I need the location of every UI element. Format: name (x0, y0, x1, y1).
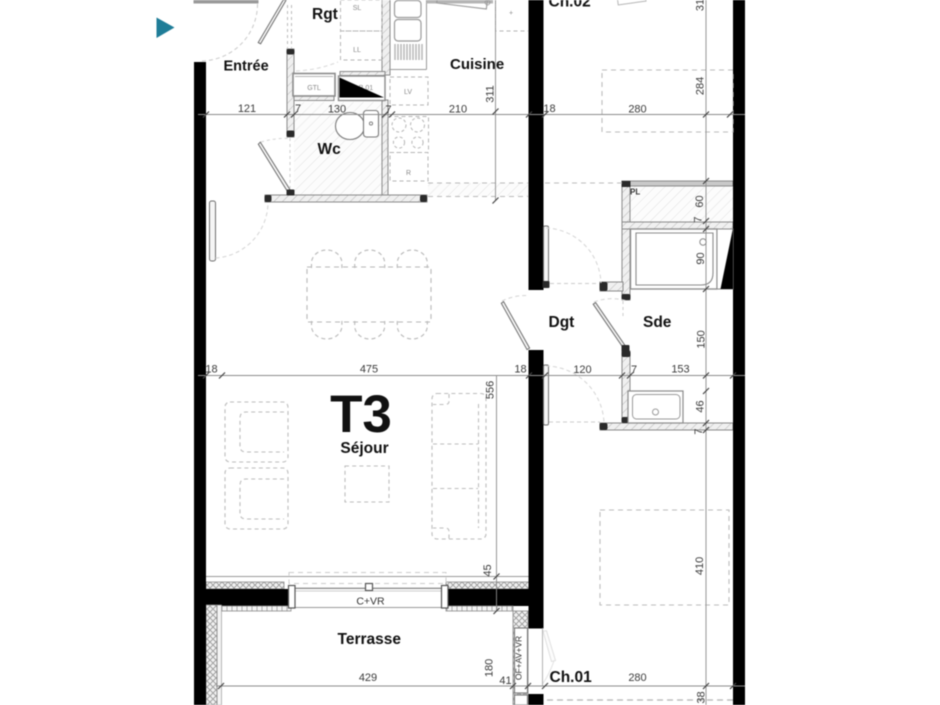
svg-text:150: 150 (696, 330, 708, 348)
svg-text:7: 7 (295, 103, 301, 115)
svg-text:Ch.01: Ch.01 (550, 669, 593, 686)
svg-text:280: 280 (628, 104, 646, 116)
svg-text:LV: LV (404, 89, 412, 96)
svg-text:18: 18 (205, 364, 217, 376)
svg-text:90: 90 (695, 252, 707, 264)
svg-text:311: 311 (485, 85, 497, 103)
svg-text:GTL: GTL (307, 85, 321, 92)
svg-text:Cuisine: Cuisine (450, 56, 504, 73)
svg-text:LL: LL (353, 47, 361, 54)
svg-text:Rgt: Rgt (312, 6, 338, 23)
svg-text:153: 153 (671, 364, 689, 376)
svg-text:284: 284 (695, 77, 707, 95)
svg-text:7: 7 (693, 216, 705, 222)
svg-text:+: + (509, 10, 513, 17)
svg-text:38: 38 (696, 691, 708, 703)
svg-text:121: 121 (238, 103, 256, 115)
svg-text:7: 7 (631, 364, 637, 376)
svg-text:429: 429 (359, 672, 377, 684)
svg-text:Ch.02: Ch.02 (549, 0, 591, 11)
svg-text:Terrasse: Terrasse (338, 631, 402, 648)
svg-text:18: 18 (514, 364, 526, 376)
svg-text:556: 556 (485, 381, 497, 399)
svg-text:7: 7 (693, 428, 705, 434)
svg-text:Sde: Sde (643, 314, 672, 331)
svg-text:280: 280 (628, 672, 646, 684)
svg-text:Dgt: Dgt (549, 314, 575, 331)
svg-text:SL: SL (353, 5, 362, 12)
svg-text:41: 41 (499, 675, 511, 687)
svg-text:PL: PL (630, 188, 640, 197)
svg-text:Entrée: Entrée (224, 59, 269, 75)
svg-text:180: 180 (484, 659, 496, 677)
svg-text:60: 60 (694, 195, 706, 207)
svg-text:45: 45 (482, 564, 494, 576)
svg-text:130: 130 (328, 104, 346, 116)
svg-text:210: 210 (449, 104, 467, 116)
svg-text:120: 120 (573, 364, 591, 376)
svg-text:Séjour: Séjour (340, 440, 388, 457)
svg-text:7: 7 (385, 104, 391, 116)
svg-text:T3: T3 (330, 385, 392, 444)
svg-text:410: 410 (694, 557, 706, 575)
svg-text:R: R (406, 170, 411, 177)
svg-text:310: 310 (695, 0, 707, 11)
svg-text:OF+AV+VR: OF+AV+VR (514, 636, 524, 680)
svg-text:C+VR: C+VR (356, 596, 385, 608)
svg-text:475: 475 (360, 364, 378, 376)
svg-text:18: 18 (543, 103, 555, 115)
svg-text:46: 46 (695, 400, 707, 412)
svg-text:Wc: Wc (318, 141, 342, 158)
